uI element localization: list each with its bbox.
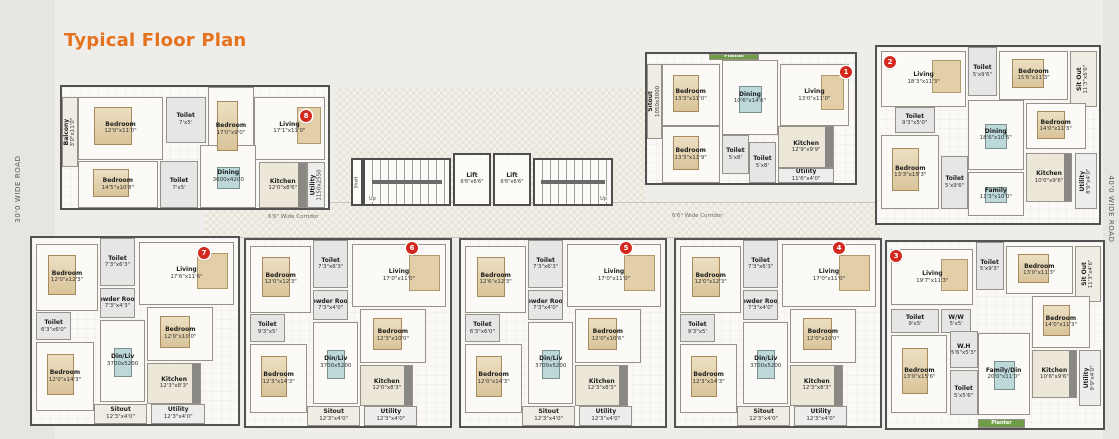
room-size-label: 13'0"x11'0" [798,96,830,102]
unit-7: Bedroom12'0"x12'3"Toilet7'3"x6'3"Living1… [30,236,240,426]
room-size-label: 10'6"x14'6" [734,98,766,104]
room-name-label: Living [604,269,624,276]
room-name-label: Kitchen [374,379,400,386]
room-name-label: Bedroom [895,166,925,173]
room-name-label: Sitout [648,91,655,112]
room-size-label: 10'6"x9'6" [1040,374,1069,380]
room-kitchen: Kitchen12'3"x8'3" [147,363,201,404]
room-size-label: 6'3"x6'0" [470,329,495,335]
room-name-label: Bedroom [52,271,82,278]
room-name-label: Din/Liv [539,356,562,363]
room-size-label: 3700x5200 [107,361,138,367]
room-size-label: 18'3"x11'3" [907,79,939,85]
room-name-label: Utility [595,409,616,416]
plan-title: Typical Floor Plan [64,30,246,51]
room-sit-out: Sit Out11'3"x6'6" [1070,51,1097,107]
room-name-label: Toilet [44,320,62,327]
room-size-label: 13'0"x15'6" [903,374,935,380]
room-bedroom: Bedroom13'0"x15'6" [891,335,947,413]
room-size-label: 11'3"x10'0" [980,194,1012,200]
room-name-label: Utility [380,409,401,416]
room-size-label: 7'3"x4'0" [533,305,558,311]
room-size-label: 12'0"x8'6" [268,185,297,191]
room-bedroom: Bedroom15'6"x11'3" [999,51,1068,100]
room-toilet: Toilet7'3"x6'3" [313,240,348,288]
room-name-label: Bedroom [378,329,408,336]
room-toilet: Toilet7'3"x6'3" [528,240,563,288]
room-name-label: Family/Din [986,368,1022,375]
room-size-label: 12'0"x14'3" [477,379,509,385]
room-name-label: Bedroom [105,122,135,129]
staircase-right: Up [533,158,613,206]
room-bedroom: Bedroom12'3"x14'3" [250,344,307,413]
room-name-label: Toilet [170,178,188,185]
room-name-label: Bedroom [695,273,725,280]
room-balcony: Balcony3'0"x11'0" [62,97,78,167]
room-toilet: Toilet9'3"x5' [250,314,285,342]
room-name-label: Powder Room [528,299,563,306]
unit-2-badge: 2 [884,56,896,68]
room-size-label: 15'6"x11'3" [1017,75,1049,81]
floor-plan-canvas: Typical Floor Plan 30'0 WIDE ROAD 40'0 W… [0,0,1119,439]
room-size-label: 14'0"x11'3" [1045,322,1077,328]
room-name-label: Sitout [753,409,774,416]
room-size-label: 12'0"x8'3" [372,385,401,391]
room-name-label: Utility [310,175,317,196]
room-living: Living19'7"x11'3" [891,249,973,305]
room-size-label: 13'3"x15'3" [894,172,926,178]
room-name-label: Bedroom [263,372,293,379]
room-size-label: 5'x5' [949,321,962,327]
room-name-label: Din/Liv [111,354,134,361]
room-living: Living17'0"x11'0" [782,244,876,307]
room-name-label: Living [913,72,933,79]
room-name-label: Bedroom [265,273,295,280]
room-kitchen: Kitchen12'3"x8'3" [575,365,628,406]
room-bedroom: Bedroom14'5"x10'8" [78,161,158,208]
room-size-label: 12'0"x10'0" [164,334,196,340]
room-din-liv: Din/Liv3700x5200 [743,322,788,404]
room-size-label: 7'x5' [179,120,192,126]
room-bedroom: Bedroom12'0"x10'6" [575,309,640,363]
room-living: Living17'6"x11'6" [139,242,234,305]
room-size-label: 12'0"x10'0" [807,336,839,342]
room-name-label: Toilet [905,114,923,121]
unit-8: Balcony3'0"x11'0"Bedroom12'0"x11'0"Toile… [60,85,330,210]
unit-5-badge: 5 [620,242,632,254]
room-kitchen: Kitchen12'9"x9'9" [778,126,834,167]
room-name-label: Bedroom [1046,316,1076,323]
room-name-label: Bedroom [216,123,246,130]
room-name-label: Kitchen [270,179,296,186]
unit-8-badge: 8 [300,110,312,122]
room-size-label: 12'9"x9'9" [792,147,821,153]
room-planter: Planter [978,419,1026,428]
room-size-label: 12'0"x12'3" [51,277,83,283]
room-powder-room: Powder Room7'3"x4'0" [743,290,778,320]
room-toilet: Toilet7'x5' [160,161,197,208]
room-name-label: Living [922,271,942,278]
room-bedroom: Bedroom12'0"x11'0" [78,97,163,160]
room-name-label: Bedroom [50,370,80,377]
room-size-label: 5'6"x5'3" [951,350,976,356]
room-size-label: 12'3"x14'3" [262,379,294,385]
room-size-label: 19'7"x11'3" [916,278,948,284]
room-size-label: 9'3"x5' [688,329,707,335]
lift-1-size: 6'6"x6'6" [460,180,483,186]
room-size-label: 11'3"x6'6" [1084,64,1090,93]
room-living: Living13'0"x11'0" [780,64,849,126]
room-name-label: Bedroom [675,89,705,96]
room-name-label: Living [804,89,824,96]
corridor-label-left: 6'6" Wide Corridor [268,214,319,220]
room-toilet: Toilet7'3"x6'3" [100,238,135,286]
room-bedroom: Bedroom14'0"x11'3" [1032,296,1090,348]
unit-3: Living19'7"x11'3"Toilet5'x9'3"Bedroom13'… [885,240,1105,430]
room-name-label: W/W [948,315,963,322]
room-din-liv: Din/Liv3700x5200 [528,322,573,404]
room-toilet: Toilet5'x8' [722,135,749,174]
room-name-label: Planter [724,54,745,60]
room-name-label: Toilet [321,258,339,265]
unit-4: Bedroom12'0"x12'3"Toilet7'3"x6'3"Living1… [674,238,882,428]
room-living: Living17'1"x11'0" [254,97,326,160]
unit-4-badge: 4 [833,242,845,254]
room-name-label: Toilet [973,65,991,72]
room-bedroom: Bedroom12'6"x12'3" [465,246,526,313]
room-utility: Utility9'9"x4'0" [1079,350,1101,406]
room-size-label: 17'1"x11'0" [273,128,305,134]
room-size-label: 12'0"x14'3" [49,377,81,383]
room-bedroom: Bedroom13'3"x11'0" [662,64,720,126]
room-size-label: 12'3"x4'0" [106,414,135,420]
room-name-label: Family [985,188,1007,195]
room-size-label: 14'0"x11'3" [1040,126,1072,132]
room-name-label: Toilet [108,256,126,263]
lift-2: Lift 6'6"x6'6" [493,153,531,206]
room-size-label: 12'3"x8'3" [160,383,189,389]
room-size-label: 5'x9'6" [973,72,992,78]
room-size-label: 7'3"x4'0" [318,305,343,311]
room-name-label: Kitchen [804,379,830,386]
room-bedroom: Bedroom13'3"x11'9" [662,126,720,183]
room-size-label: 12'0"x11'0" [104,128,136,134]
room-size-label: 17'0"x11'0" [813,276,845,282]
room-size-label: 10'0"x9'6" [1035,178,1064,184]
room-sitout: Sitout12'3"x4'0" [94,404,148,424]
room-name-label: Planter [991,421,1012,427]
room-size-label: 17'0"x11'0" [383,276,415,282]
room-name-label: Powder Room [100,297,135,304]
room-name-label: Toilet [954,386,972,393]
room-size-label: 20'0"x11'0" [987,374,1019,380]
room-size-label: 3700x5200 [535,363,566,369]
room-w-h: W.H5'6"x5'3" [950,331,978,368]
room-name-label: Toilet [726,148,744,155]
room-sitout: Sitout1050x3000 [647,64,662,139]
room-family: Family11'3"x10'0" [968,172,1024,216]
room-name-label: Bedroom [478,372,508,379]
room-size-label: 6'3"x6'0" [41,327,66,333]
room-size-label: 7'3"x4'3" [105,303,130,309]
room-size-label: 1050x3000 [655,86,661,117]
room-kitchen: Kitchen10'0"x9'6" [1026,153,1073,202]
room-size-label: 12'3"x14'3" [692,379,724,385]
room-toilet: Toilet7'3"x6'3" [743,240,778,288]
room-living: Living17'0"x11'0" [352,244,446,307]
room-size-label: 3'0"x11'0" [70,117,76,146]
room-bedroom: Bedroom12'0"x12'3" [680,246,741,313]
room-dining: Dining10'6"x14'6" [722,60,778,135]
room-size-label: 7'x5' [172,185,185,191]
room-size-label: 1150x2550 [316,169,322,200]
room-size-label: 3700x5200 [750,363,781,369]
room-name-label: Dining [739,92,761,99]
unit-1-badge: 1 [840,66,852,78]
room-toilet: Toilet5'x9'3" [976,242,1004,290]
room-size-label: 7'3"x6'3" [318,264,343,270]
room-size-label: 12'0"x12'3" [265,279,297,285]
unit-3-badge: 3 [890,250,902,262]
room-size-label: 5'x8' [729,155,742,161]
room-bedroom: Bedroom12'0"x12'3" [250,246,311,313]
room-name-label: Living [389,269,409,276]
room-name-label: Powder Room [743,299,778,306]
room-name-label: Kitchen [161,377,187,384]
room-name-label: Bedroom [693,372,723,379]
room-name-label: Bedroom [808,329,838,336]
room-size-label: 8'9"x4'0" [1086,168,1092,193]
room-toilet: Toilet9'3"x5'0" [895,107,935,133]
room-name-label: Bedroom [904,368,934,375]
room-name-label: Powder Room [313,299,348,306]
stair-up-label-left: Up [368,196,377,202]
room-name-label: Balcony [64,118,71,145]
room-size-label: 13'3"x11'0" [674,96,706,102]
room-name-label: Toilet [176,113,194,120]
room-name-label: Toilet [688,322,706,329]
room-toilet: Toilet6'3"x6'0" [465,314,500,342]
unit-5: Bedroom12'6"x12'3"Toilet7'3"x6'3"Living1… [459,238,667,428]
room-size-label: 17'0"x9'0" [216,130,245,136]
room-bedroom: Bedroom13'3"x15'3" [881,135,939,209]
room-name-label: Living [819,269,839,276]
room-bedroom: Bedroom14'0"x11'3" [1026,103,1086,149]
room-name-label: Bedroom [1024,264,1054,271]
room-name-label: Bedroom [675,148,705,155]
unit-1: PlanterSitout1050x3000Bedroom13'3"x11'0"… [645,52,857,185]
room-toilet: Toilet5'x9'6" [941,156,968,209]
shaft: Shaft [351,158,363,206]
room-name-label: Utility [810,409,831,416]
room-w-w: W/W5'x5' [941,309,971,333]
room-name-label: Utility [796,169,817,176]
room-name-label: W.H [957,344,970,351]
room-size-label: 13'0"x11'3" [1023,270,1055,276]
staircase-left: Up [363,158,451,206]
room-name-label: Dining [985,129,1007,136]
room-kitchen: Kitchen12'0"x8'6" [259,162,307,208]
room-size-label: 7'3"x4'0" [748,305,773,311]
room-name-label: Din/Liv [324,356,347,363]
room-size-label: 12'6"x12'3" [480,279,512,285]
room-size-label: 12'3"x10'0" [377,336,409,342]
lift-2-size: 6'6"x6'6" [500,180,523,186]
room-sitout: Sitout12'3"x4'0" [522,406,575,426]
room-bedroom: Bedroom12'0"x14'3" [465,344,522,413]
room-powder-room: Powder Room7'3"x4'0" [313,290,348,320]
room-bedroom: Bedroom12'0"x12'3" [36,244,98,311]
room-size-label: 17'6"x11'6" [170,274,202,280]
room-living: Living17'0"x11'0" [567,244,661,307]
room-name-label: Sit Out [1077,67,1084,91]
room-utility: Utility12'3"x4'0" [151,404,205,424]
room-name-label: Bedroom [165,327,195,334]
room-name-label: Dining [217,170,239,177]
room-name-label: Bedroom [103,178,133,185]
unit-7-badge: 7 [198,247,210,259]
room-size-label: 9'9"x4'0" [1090,365,1096,390]
room-size-label: 14'5"x10'8" [102,185,134,191]
room-size-label: 11'3"x4'6" [1088,259,1094,288]
room-size-label: 11'6"x4'0" [792,176,821,182]
room-size-label: 12'3"x4'0" [534,416,563,422]
room-size-label: 12'3"x8'3" [802,385,831,391]
room-size-label: 9'x5' [908,321,921,327]
room-bedroom: Bedroom13'0"x11'3" [1006,246,1073,294]
room-name-label: Bedroom [593,329,623,336]
room-name-label: Utility [1084,367,1091,388]
road-label-left: 30'0 WIDE ROAD [14,144,22,234]
room-utility: Utility12'3"x4'0" [364,406,417,426]
room-size-label: 7'3"x6'3" [105,262,130,268]
room-kitchen: Kitchen12'3"x8'3" [790,365,843,406]
room-toilet: Toilet6'3"x6'0" [36,312,71,340]
room-name-label: Toilet [980,260,998,267]
room-size-label: 12'3"x4'0" [749,416,778,422]
room-name-label: Kitchen [1042,368,1068,375]
room-size-label: 12'0"x10'6" [592,336,624,342]
room-size-label: 12'3"x8'3" [587,385,616,391]
room-toilet: Toilet5'x5'6" [950,370,978,415]
room-toilet: Toilet5'x8' [749,142,776,183]
room-size-label: 5'x8' [756,163,769,169]
room-bedroom: Bedroom12'3"x10'0" [360,309,425,363]
room-name-label: Toilet [751,258,769,265]
unit-6-badge: 6 [406,242,418,254]
room-dining: Dining3600x4200 [200,145,256,208]
room-din-liv: Din/Liv3700x5200 [313,322,358,404]
room-size-label: 17'0"x11'0" [598,276,630,282]
room-size-label: 9'3"x5'0" [902,120,927,126]
room-utility: Utility8'9"x4'0" [1075,153,1097,209]
room-name-label: Sitout [323,409,344,416]
room-name-label: Sitout [110,407,131,414]
road-label-right: 40'0 WIDE ROAD [1107,164,1115,254]
room-sit-out: Sit Out11'3"x4'6" [1075,246,1101,302]
room-name-label: Utility [168,407,189,414]
room-name-label: Din/Liv [754,356,777,363]
unit-2: Living18'3"x11'3"Toilet5'x9'6"Bedroom15'… [875,45,1101,225]
room-size-label: 12'0"x12'3" [695,279,727,285]
room-size-label: 5'x9'6" [945,183,964,189]
room-name-label: Kitchen [793,141,819,148]
unit-6: Bedroom12'0"x12'3"Toilet7'3"x6'3"Living1… [244,238,452,428]
room-powder-room: Powder Room7'3"x4'0" [528,290,563,320]
room-name-label: Bedroom [1041,120,1071,127]
room-name-label: Living [176,267,196,274]
room-toilet: Toilet9'x5' [891,309,939,333]
room-name-label: Toilet [753,156,771,163]
room-dining: Dining18'6"x10'6" [968,100,1024,170]
room-bedroom: Bedroom12'0"x14'3" [36,342,94,411]
shaft-label: Shaft [355,176,360,188]
room-sitout: Sitout12'3"x4'0" [307,406,360,426]
room-size-label: 5'x5'6" [954,393,973,399]
room-sitout: Sitout12'3"x4'0" [737,406,790,426]
room-name-label: Toilet [258,322,276,329]
lift-1: Lift 6'6"x6'6" [453,153,491,206]
room-utility: Utility12'3"x4'0" [579,406,632,426]
room-powder-room: Powder Room7'3"x4'3" [100,288,135,318]
room-toilet: Toilet7'x5' [166,97,206,143]
room-name-label: Toilet [945,176,963,183]
room-utility: Utility12'3"x4'0" [794,406,847,426]
room-utility: Utility1150x2550 [307,162,326,208]
room-name-label: Sitout [538,409,559,416]
corridor-label-right: 6'6" Wide Corridor [672,213,723,219]
room-name-label: Toilet [473,322,491,329]
room-name-label: Bedroom [1018,69,1048,76]
room-size-label: 5'x9'3" [980,266,999,272]
room-kitchen: Kitchen10'6"x9'6" [1032,350,1077,398]
room-size-label: 3700x5200 [320,363,351,369]
room-size-label: 12'3"x4'0" [806,416,835,422]
room-size-label: 7'3"x6'3" [748,264,773,270]
room-size-label: 3600x4200 [213,177,244,183]
room-name-label: Sit Out [1082,262,1089,286]
room-name-label: Toilet [536,258,554,265]
room-size-label: 9'3"x5' [258,329,277,335]
room-din-liv: Din/Liv3700x5200 [100,320,145,402]
room-bedroom: Bedroom12'0"x10'0" [147,307,213,361]
room-name-label: Utility [1079,170,1086,191]
room-bedroom: Bedroom12'0"x10'0" [790,309,855,363]
room-size-label: 12'3"x4'0" [319,416,348,422]
room-size-label: 12'3"x4'0" [376,416,405,422]
room-utility: Utility11'6"x4'0" [778,168,834,183]
room-size-label: 12'3"x4'0" [591,416,620,422]
room-name-label: Bedroom [480,273,510,280]
room-size-label: 18'6"x10'6" [980,135,1012,141]
room-name-label: Kitchen [1036,171,1062,178]
room-size-label: 12'3"x4'0" [164,414,193,420]
room-family-din: Family/Din20'0"x11'0" [978,333,1030,415]
room-toilet: Toilet5'x9'6" [968,47,997,96]
room-name-label: Kitchen [589,379,615,386]
room-kitchen: Kitchen12'0"x8'3" [360,365,413,406]
room-toilet: Toilet9'3"x5' [680,314,715,342]
room-size-label: 7'3"x6'3" [533,264,558,270]
room-name-label: Toilet [906,315,924,322]
stair-up-label-right: Up [599,196,608,202]
room-name-label: Living [279,122,299,129]
room-bedroom: Bedroom12'3"x14'3" [680,344,737,413]
room-size-label: 13'3"x11'9" [674,155,706,161]
